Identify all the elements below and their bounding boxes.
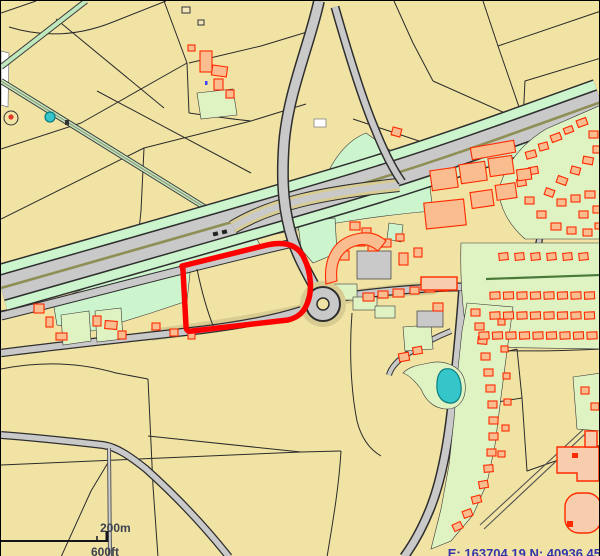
building	[498, 451, 505, 457]
building	[499, 253, 509, 261]
scale-metric-label: 200m	[100, 521, 131, 535]
building	[152, 323, 160, 330]
building	[214, 79, 223, 90]
building	[571, 195, 580, 202]
building	[515, 253, 525, 261]
building	[557, 199, 566, 206]
building	[504, 399, 511, 405]
building	[393, 289, 404, 297]
building	[530, 292, 540, 300]
building	[517, 312, 527, 320]
building	[584, 292, 594, 300]
building	[399, 253, 408, 265]
building	[531, 253, 541, 261]
building	[573, 332, 583, 340]
building	[391, 127, 402, 137]
building	[433, 303, 443, 311]
building	[396, 234, 404, 241]
building	[547, 253, 557, 261]
building	[571, 292, 581, 300]
building	[584, 312, 594, 320]
building	[581, 387, 589, 394]
building	[490, 292, 500, 300]
building	[481, 353, 490, 360]
building	[478, 480, 488, 488]
building	[587, 332, 597, 340]
building	[544, 312, 554, 320]
building	[479, 332, 489, 340]
building	[567, 227, 576, 234]
building	[583, 229, 592, 236]
building	[537, 211, 546, 218]
building	[484, 465, 494, 473]
building	[188, 45, 195, 51]
building	[557, 312, 567, 320]
building	[530, 312, 540, 320]
building	[398, 352, 409, 362]
building	[56, 333, 67, 340]
building	[414, 248, 422, 257]
building	[363, 293, 374, 301]
building	[571, 312, 581, 320]
building	[471, 309, 480, 316]
building	[506, 332, 516, 340]
building	[503, 373, 510, 379]
building	[412, 346, 422, 354]
building	[570, 166, 581, 175]
building	[410, 287, 419, 294]
building	[487, 449, 496, 456]
building	[471, 495, 482, 504]
building	[579, 253, 589, 261]
scale-imperial-label: 600ft	[91, 545, 119, 556]
building	[489, 433, 498, 440]
building	[551, 223, 561, 230]
building	[595, 223, 600, 229]
building	[484, 369, 493, 376]
building	[582, 156, 593, 165]
map-window: 200m 600ft E: 163704.19 N: 40936.45	[0, 0, 600, 556]
building	[486, 385, 495, 392]
building	[585, 191, 595, 198]
building	[579, 211, 588, 218]
building	[350, 222, 360, 230]
building	[533, 332, 543, 340]
building	[557, 292, 567, 300]
building	[502, 425, 509, 431]
building	[488, 401, 497, 408]
building	[591, 403, 599, 410]
pondlet	[45, 112, 55, 122]
building	[226, 90, 234, 98]
building	[544, 292, 554, 300]
building	[378, 291, 388, 298]
building	[489, 417, 498, 424]
building	[519, 332, 529, 340]
building	[200, 51, 212, 72]
building	[593, 146, 600, 153]
building	[593, 206, 600, 213]
building	[503, 312, 513, 320]
building	[34, 304, 44, 313]
building	[538, 142, 549, 151]
map-canvas[interactable]: 200m 600ft E: 163704.19 N: 40936.45	[1, 1, 600, 556]
building	[498, 319, 505, 325]
building	[93, 316, 101, 326]
building	[546, 332, 556, 340]
building	[517, 292, 527, 300]
building	[560, 332, 570, 340]
coordinate-readout: E: 163704.19 N: 40936.45	[448, 546, 600, 556]
building	[46, 317, 53, 327]
building	[118, 331, 126, 339]
building	[563, 253, 573, 261]
building	[503, 292, 513, 300]
building	[490, 312, 500, 320]
building	[211, 65, 227, 77]
building	[525, 197, 534, 204]
building	[589, 131, 598, 138]
building	[105, 320, 118, 329]
building	[170, 329, 178, 336]
building	[475, 323, 484, 330]
building	[492, 332, 502, 340]
building	[501, 346, 508, 352]
